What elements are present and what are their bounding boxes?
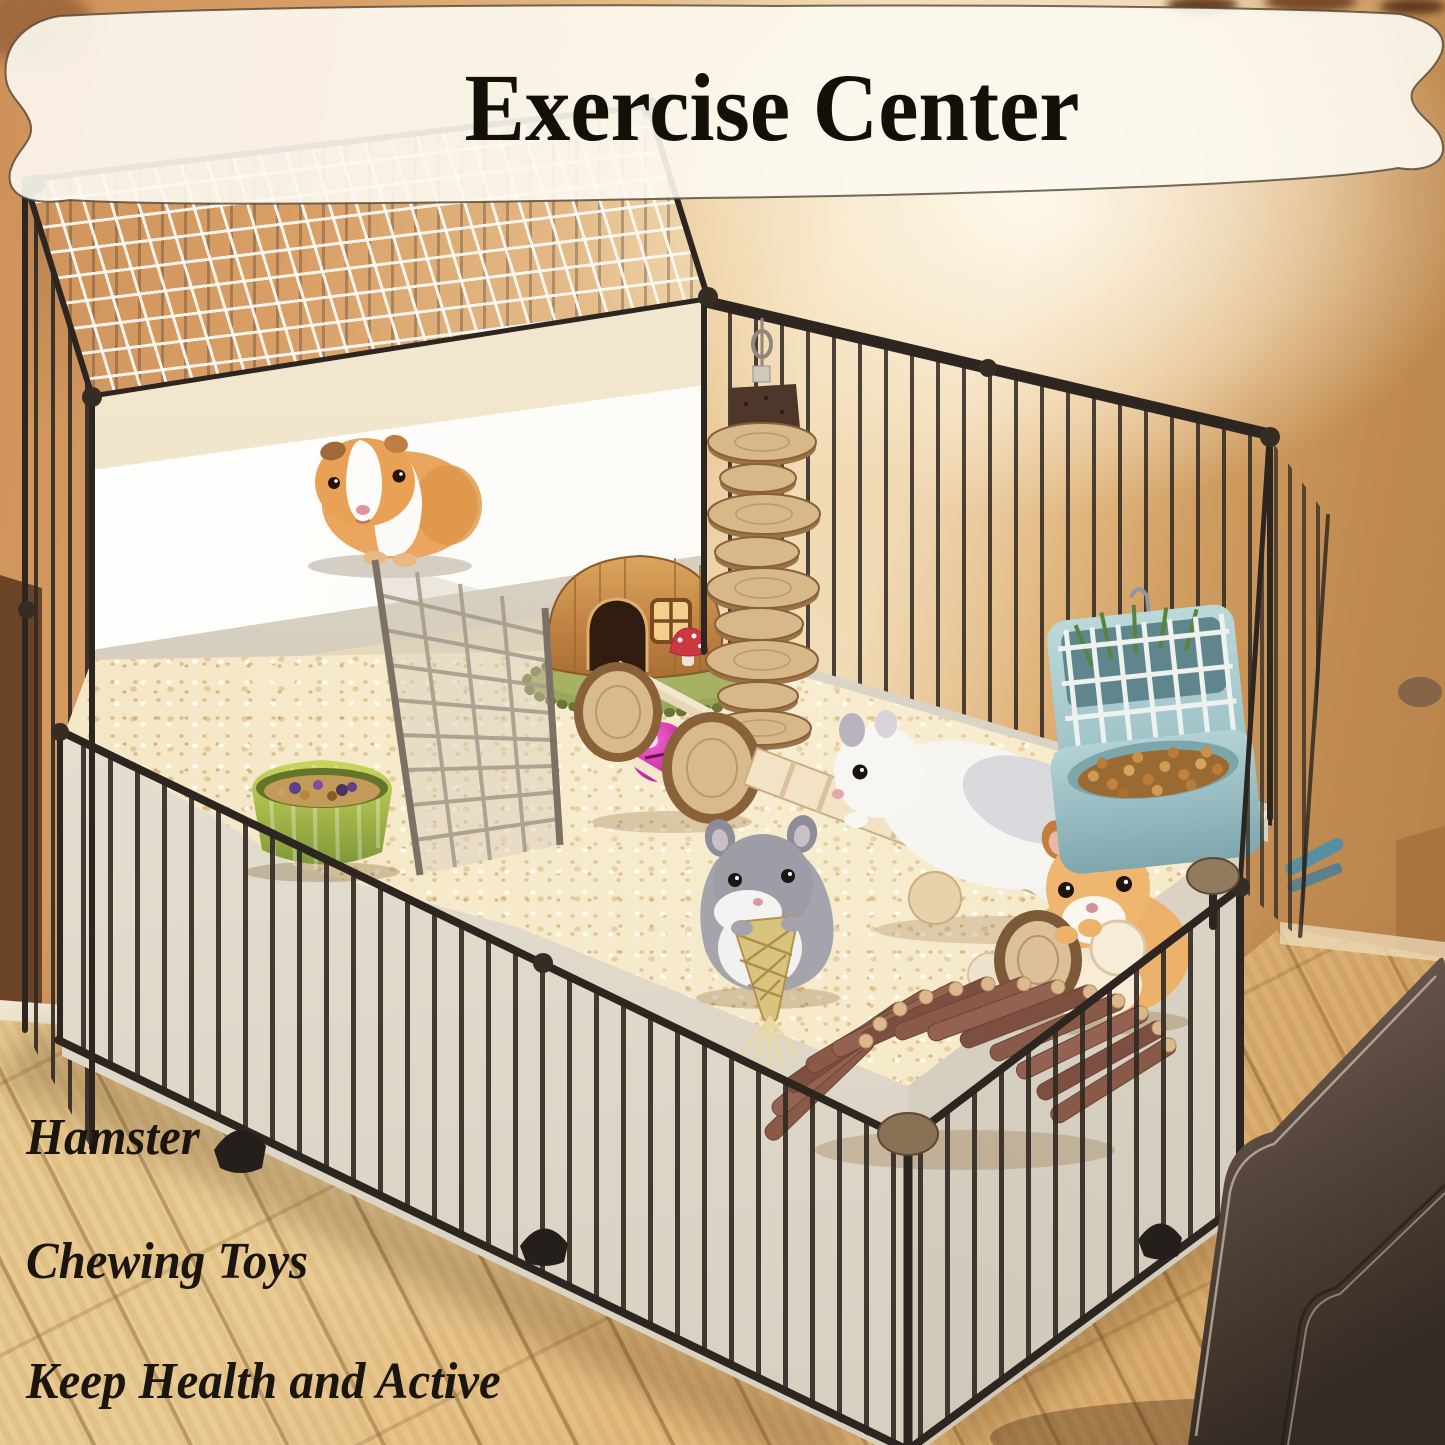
banner-ribbon: Exercise Center — [0, 0, 1445, 1445]
caption-hamster: Hamster — [26, 1108, 200, 1167]
caption-keep-health: Keep Health and Active — [26, 1352, 501, 1411]
product-photo: Exercise Center Hamster Chewing Toys Kee… — [0, 0, 1445, 1445]
caption-chewing-toys: Chewing Toys — [26, 1232, 308, 1291]
banner-title: Exercise Center — [465, 54, 1080, 161]
